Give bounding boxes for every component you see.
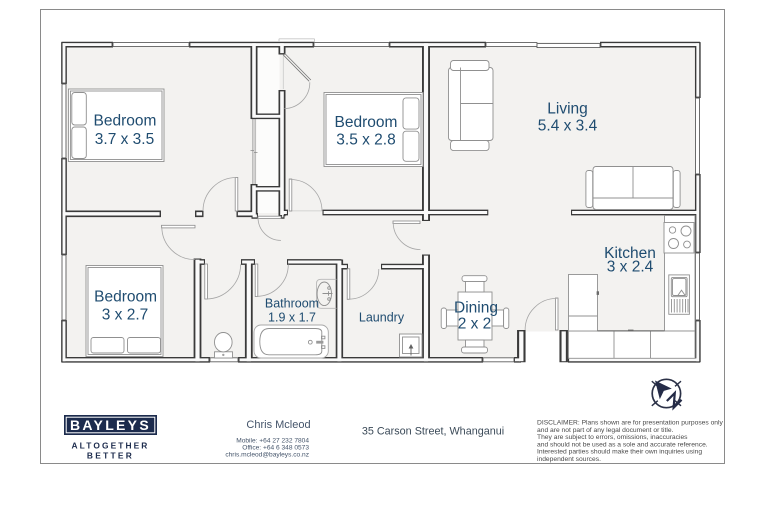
- svg-text:Living: Living: [547, 100, 588, 117]
- svg-text:35 Carson Street, Whanganui: 35 Carson Street, Whanganui: [362, 425, 504, 437]
- svg-text:3 x 2.7: 3 x 2.7: [102, 306, 149, 323]
- svg-text:Bedroom: Bedroom: [335, 114, 398, 131]
- svg-text:independent sources.: independent sources.: [537, 456, 601, 463]
- svg-text:and are not part of any legal: and are not part of any legal document o…: [537, 427, 674, 434]
- svg-text:2 x 2: 2 x 2: [458, 316, 492, 333]
- svg-text:DISCLAIMER: Plans shown are f: DISCLAIMER: Plans shown are for presenta…: [537, 420, 724, 427]
- svg-text:Interested parties should make: Interested parties should make their own…: [537, 449, 702, 456]
- svg-text:Mobile: +64 27 232 7804: Mobile: +64 27 232 7804: [236, 438, 309, 445]
- svg-text:Office: +64 6 348 0573: Office: +64 6 348 0573: [242, 445, 309, 452]
- svg-text:3 x 2.4: 3 x 2.4: [607, 259, 654, 276]
- svg-text:Bathroom: Bathroom: [265, 297, 319, 311]
- svg-text:3.5 x 2.8: 3.5 x 2.8: [336, 132, 395, 149]
- svg-text:chris.mcleod@bayleys.co.nz: chris.mcleod@bayleys.co.nz: [225, 452, 309, 459]
- svg-text:and should not be used as a so: and should not be used as a sole and acc…: [537, 441, 708, 448]
- svg-text:They are subject to errors, om: They are subject to errors, omissions, i…: [537, 434, 688, 441]
- svg-text:Dining: Dining: [454, 300, 498, 317]
- svg-text:BETTER: BETTER: [87, 451, 134, 461]
- svg-text:Chris Mcleod: Chris Mcleod: [246, 419, 310, 431]
- svg-text:BAYLEYS: BAYLEYS: [70, 417, 151, 433]
- svg-text:Bedroom: Bedroom: [94, 289, 157, 306]
- svg-text:5.4 x 3.4: 5.4 x 3.4: [538, 118, 598, 135]
- svg-text:Bedroom: Bedroom: [94, 112, 157, 129]
- svg-text:1.9 x 1.7: 1.9 x 1.7: [268, 311, 316, 325]
- svg-text:3.7 x 3.5: 3.7 x 3.5: [95, 131, 154, 148]
- svg-text:Laundry: Laundry: [359, 311, 405, 325]
- svg-text:ALTOGETHER: ALTOGETHER: [72, 440, 150, 450]
